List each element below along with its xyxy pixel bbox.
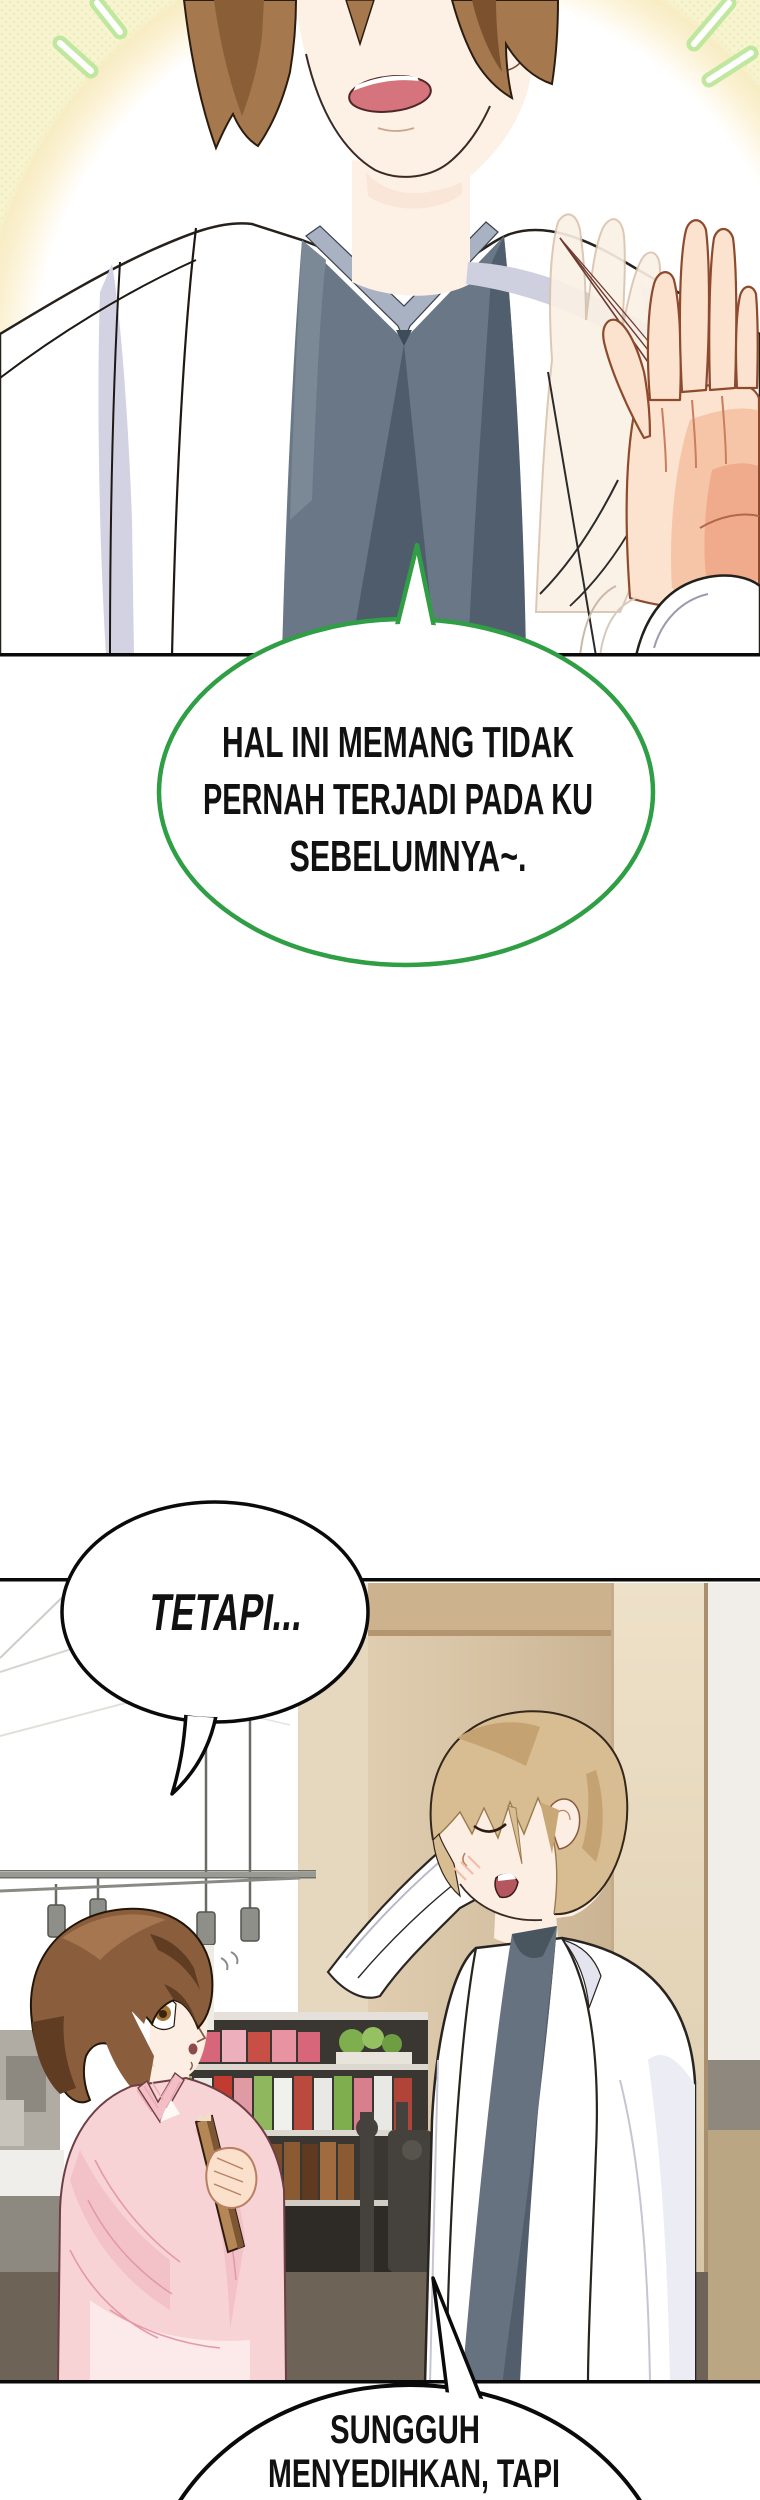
svg-text:PERNAH TERJADI PADA KU: PERNAH TERJADI PADA KU [203, 775, 593, 824]
svg-text:MENYEDIHKAN, TAPI: MENYEDIHKAN, TAPI [268, 2452, 560, 2496]
svg-text:SEBELUMNYA~.: SEBELUMNYA~. [290, 832, 527, 881]
svg-text:SUNGGUH: SUNGGUH [330, 2408, 480, 2452]
svg-text:HAL INI MEMANG TIDAK: HAL INI MEMANG TIDAK [222, 718, 574, 767]
svg-text:TETAPI...: TETAPI... [146, 1584, 307, 1642]
